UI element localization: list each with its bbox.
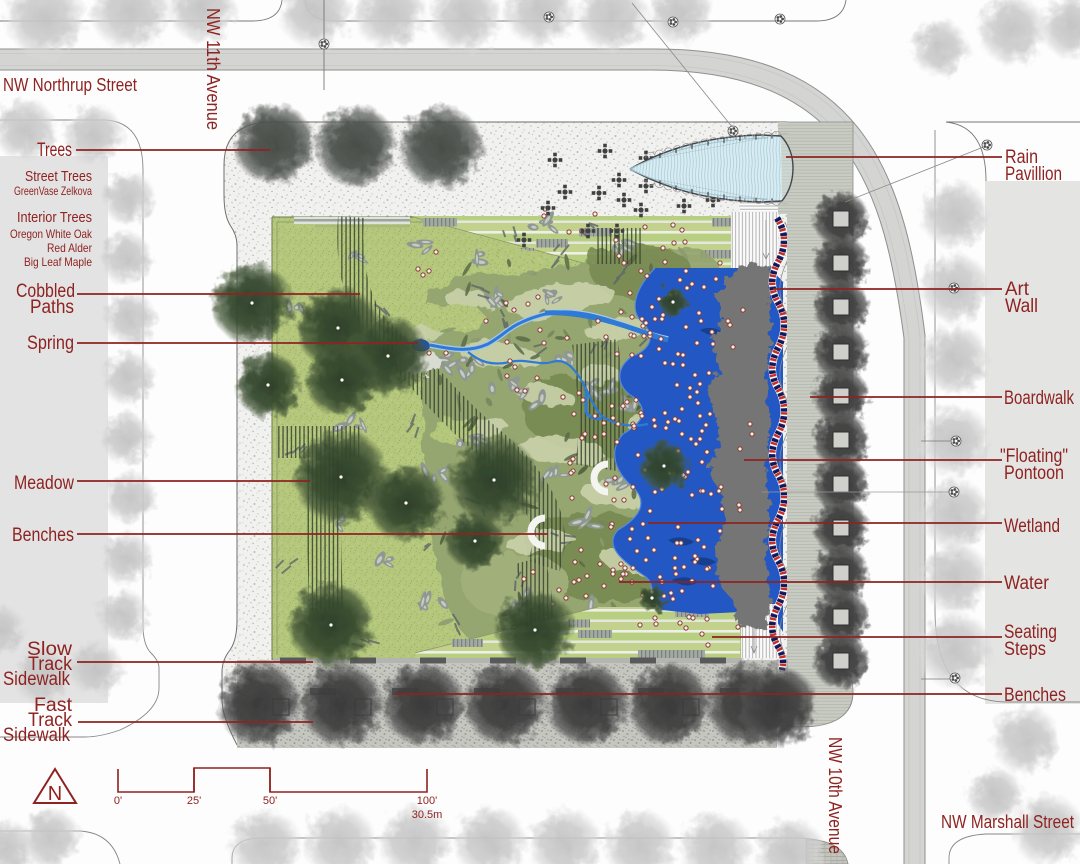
svg-text:Pontoon: Pontoon — [1004, 463, 1064, 484]
svg-text:Red Alder: Red Alder — [47, 241, 92, 255]
svg-text:Steps: Steps — [1004, 639, 1046, 660]
svg-text:Sidewalk: Sidewalk — [3, 725, 70, 746]
svg-text:Water: Water — [1004, 573, 1050, 594]
svg-text:0': 0' — [114, 795, 122, 807]
svg-text:NW 10th Avenue: NW 10th Avenue — [825, 737, 845, 854]
svg-text:Wetland: Wetland — [1004, 516, 1060, 537]
svg-text:GreenVase Zelkova: GreenVase Zelkova — [14, 184, 92, 198]
svg-text:Street Trees: Street Trees — [25, 168, 92, 185]
svg-text:100': 100' — [417, 795, 437, 807]
svg-text:Spring: Spring — [27, 333, 74, 354]
svg-text:Oregon White Oak: Oregon White Oak — [10, 227, 93, 241]
svg-text:Trees: Trees — [37, 140, 72, 161]
svg-text:Benches: Benches — [12, 525, 74, 546]
svg-text:30.5m: 30.5m — [412, 809, 443, 821]
svg-text:25': 25' — [187, 795, 201, 807]
svg-text:50': 50' — [263, 795, 277, 807]
svg-text:Boardwalk: Boardwalk — [1004, 388, 1074, 409]
svg-text:Paths: Paths — [30, 297, 74, 318]
svg-text:Benches: Benches — [1004, 685, 1066, 706]
svg-text:NW Marshall Street: NW Marshall Street — [941, 812, 1074, 832]
svg-text:NW Northrup Street: NW Northrup Street — [3, 75, 137, 95]
svg-text:Wall: Wall — [1005, 296, 1038, 317]
svg-text:Interior Trees: Interior Trees — [17, 209, 92, 226]
svg-text:Meadow: Meadow — [14, 473, 74, 494]
svg-text:NW 11th Avenue: NW 11th Avenue — [203, 8, 223, 130]
svg-text:Pavillion: Pavillion — [1005, 164, 1062, 185]
svg-text:Sidewalk: Sidewalk — [3, 669, 70, 690]
svg-text:N: N — [48, 783, 62, 805]
svg-text:Big Leaf Maple: Big Leaf Maple — [24, 255, 92, 269]
